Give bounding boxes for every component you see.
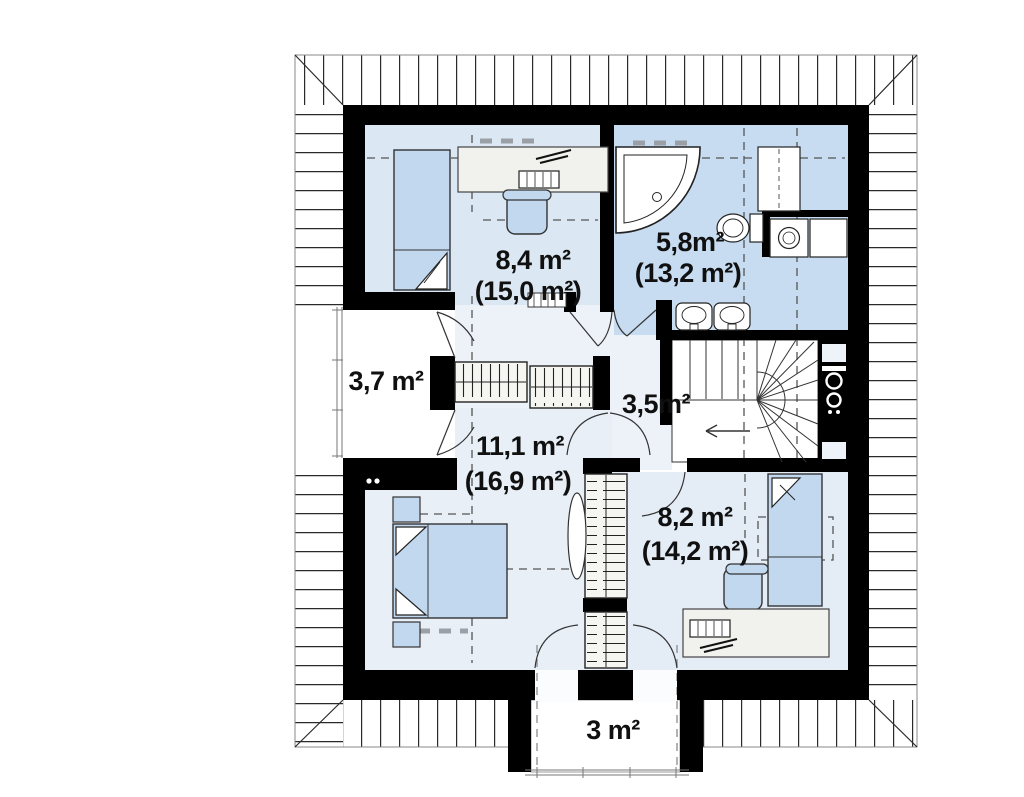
label-balcony-left-area: 3,7 m² <box>348 366 424 396</box>
roof-band-top <box>295 55 917 105</box>
label-bedroom2-area: 11,1 m² <box>476 431 565 461</box>
wall-bedroom3-top-a <box>612 458 640 472</box>
balcony-door-gap-left <box>535 670 578 702</box>
toilet-tank <box>750 214 763 242</box>
wall-bottom-a <box>343 670 535 700</box>
wall-top <box>343 105 869 125</box>
wall-wardrobe-mid <box>583 598 627 612</box>
label-bedroom3-area-full: (14,2 m²) <box>642 536 749 566</box>
floor-plan-drawing: 8,4 m² (15,0 m²) 5,8m² (13,2 m²) 3,7 m² … <box>0 0 1024 797</box>
label-bathroom-area-full: (13,2 m²) <box>635 258 742 288</box>
wall-left-upper <box>343 105 365 292</box>
wall-bottom-b <box>677 670 869 700</box>
nightstand-1 <box>393 497 420 522</box>
wall-balcony-left-top <box>343 292 455 310</box>
roof-band-right <box>869 105 917 700</box>
roof-band-bottom-right <box>703 700 917 747</box>
label-bedroom2-area-full: (16,9 m²) <box>465 466 572 496</box>
label-bedroom1-area: 8,4 m² <box>495 245 571 275</box>
standing-mirror <box>568 493 586 579</box>
wall-balcony-left-bottom <box>343 458 457 490</box>
label-balcony-bottom-area: 3 m² <box>586 715 640 745</box>
wall-bottom-stub <box>578 670 633 700</box>
vent-mark <box>374 478 379 483</box>
roof-band-left-upper <box>295 105 343 307</box>
label-bedroom1-area-full: (15,0 m²) <box>475 276 582 306</box>
balcony-door-gap-right <box>633 670 677 702</box>
wall-wardrobe-stub-top <box>583 458 612 474</box>
wall-balcony-jog-left <box>508 700 531 772</box>
washing-machine <box>770 219 808 257</box>
keyboard-icon <box>519 171 559 188</box>
stairs-floor <box>672 340 818 462</box>
label-bathroom-area: 5,8m² <box>656 227 725 257</box>
wall-wardrobe-block-right <box>593 356 610 410</box>
floor-plan-page: 8,4 m² (15,0 m²) 5,8m² (13,2 m²) 3,7 m² … <box>0 0 1024 797</box>
wall-bathroom-bottom <box>658 330 848 340</box>
roof-band-bottom-left <box>343 700 508 747</box>
keyboard-icon <box>690 620 730 637</box>
label-bedroom3-area: 8,2 m² <box>657 502 733 532</box>
sink-2 <box>714 303 750 330</box>
wall-wardrobe-block-left <box>430 356 455 410</box>
nightstand-2 <box>393 622 420 647</box>
label-hall-area: 3,5m² <box>622 389 691 419</box>
wall-balcony-jog-right <box>680 700 703 772</box>
roof-band-left-lower <box>295 458 343 700</box>
bathroom-cabinet <box>810 219 847 257</box>
wall-right <box>848 105 869 700</box>
sink-1 <box>676 303 712 330</box>
vent-mark <box>366 478 371 483</box>
wall-left-lower <box>343 490 365 700</box>
wall-bedroom3-top-b <box>687 458 848 472</box>
